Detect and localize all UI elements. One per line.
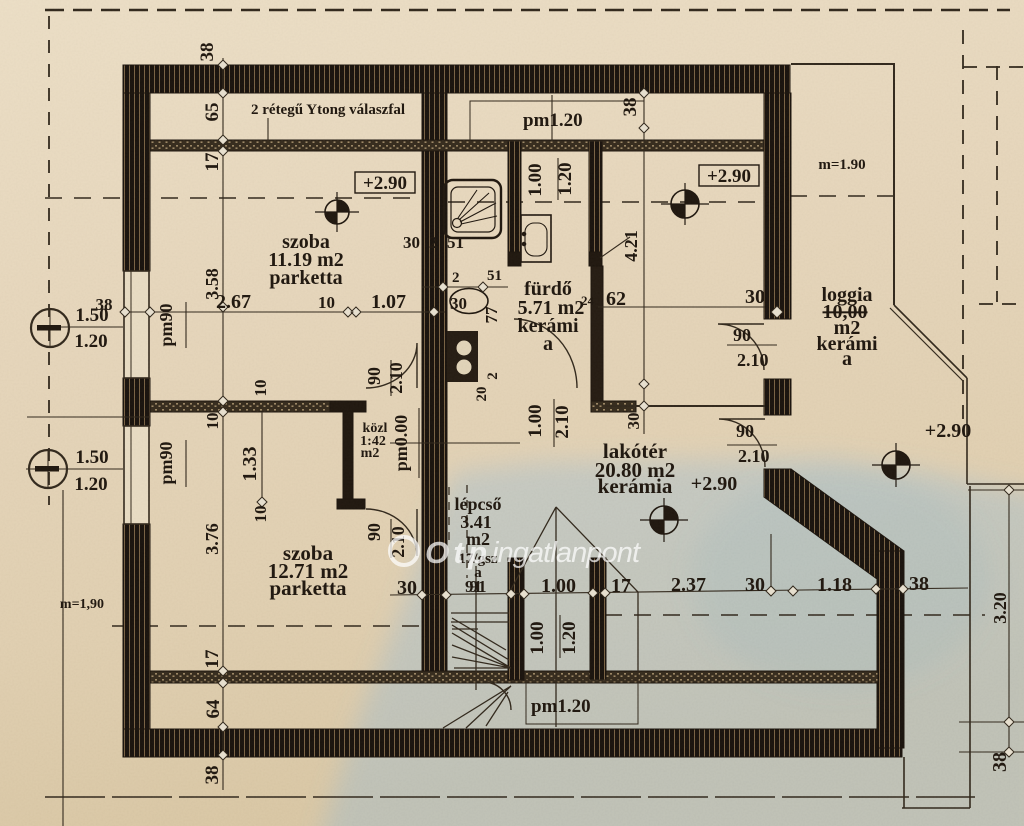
svg-text:Otp: Otp <box>425 535 487 570</box>
svg-text:ingatlanpont: ingatlanpont <box>492 537 642 569</box>
